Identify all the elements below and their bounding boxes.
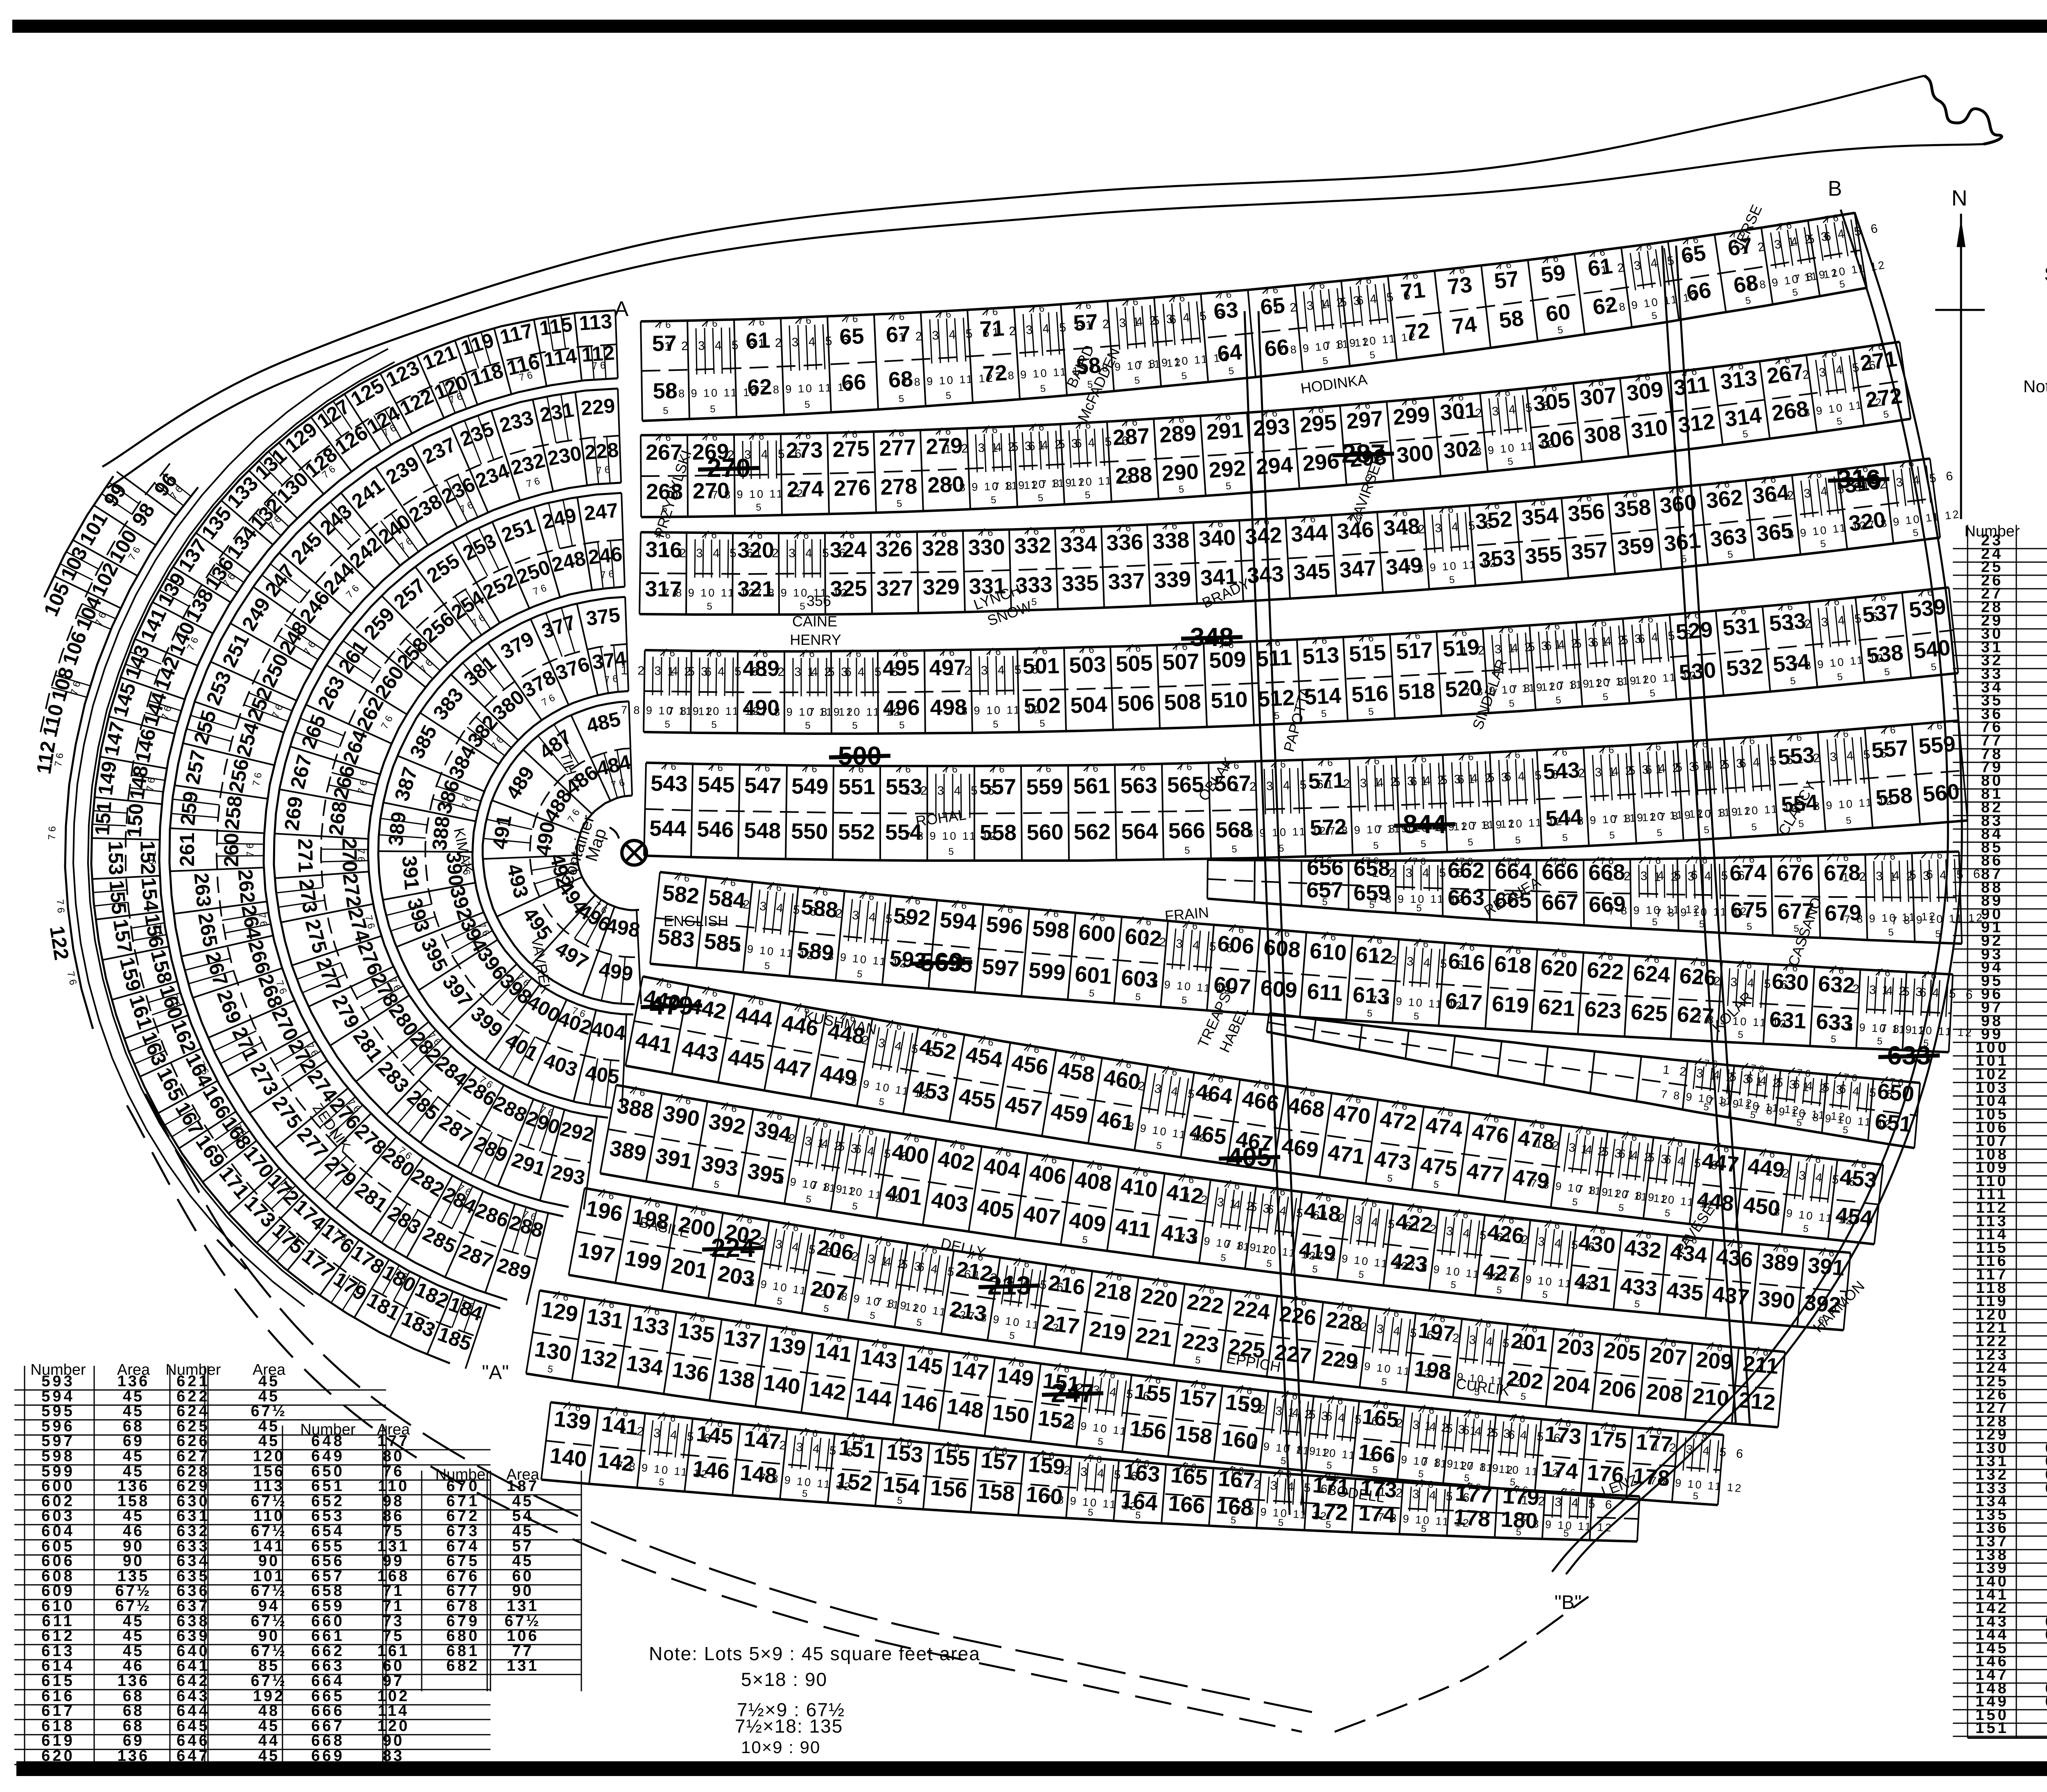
- svg-text:7 6: 7 6: [1043, 1153, 1058, 1166]
- svg-text:564: 564: [1121, 819, 1158, 844]
- svg-text:7 6: 7 6: [646, 1197, 662, 1210]
- svg-text:7 6: 7 6: [831, 1229, 846, 1242]
- svg-text:272: 272: [1864, 383, 1904, 413]
- svg-text:7 6: 7 6: [905, 1132, 920, 1145]
- svg-text:7 6: 7 6: [1414, 938, 1429, 950]
- svg-text:136: 136: [117, 1747, 149, 1765]
- svg-text:615: 615: [41, 1672, 75, 1690]
- svg-text:503: 503: [1069, 652, 1106, 678]
- svg-text:153: 153: [104, 841, 127, 875]
- svg-text:5: 5: [800, 601, 805, 612]
- svg-text:609: 609: [1259, 975, 1298, 1003]
- svg-text:5: 5: [1563, 1528, 1569, 1539]
- svg-text:510: 510: [1210, 687, 1248, 713]
- svg-text:5: 5: [658, 1476, 665, 1488]
- svg-text:7 6: 7 6: [953, 899, 967, 912]
- svg-text:7 6: 7 6: [1788, 853, 1802, 865]
- svg-text:7 6: 7 6: [1669, 1137, 1683, 1149]
- svg-text:653: 653: [311, 1507, 344, 1525]
- svg-text:496: 496: [883, 695, 920, 721]
- svg-text:106: 106: [507, 1627, 539, 1645]
- svg-text:146: 146: [899, 1388, 940, 1417]
- svg-text:N: N: [1952, 186, 1968, 210]
- svg-text:675: 675: [446, 1552, 479, 1570]
- svg-text:561: 561: [1073, 773, 1110, 799]
- svg-text:5: 5: [1602, 691, 1609, 703]
- svg-text:7 6: 7 6: [1137, 916, 1152, 928]
- svg-text:339: 339: [1153, 567, 1191, 593]
- svg-text:5: 5: [856, 968, 863, 980]
- svg-text:7 6: 7 6: [600, 1298, 615, 1311]
- svg-text:7 6: 7 6: [1738, 959, 1752, 971]
- svg-text:7 6: 7 6: [554, 1290, 569, 1304]
- svg-text:71: 71: [1399, 278, 1426, 305]
- svg-text:314: 314: [1723, 403, 1763, 432]
- svg-text:142: 142: [808, 1376, 848, 1406]
- svg-text:158: 158: [1174, 1421, 1214, 1450]
- svg-text:7 6: 7 6: [1637, 1229, 1652, 1241]
- svg-text:7 6: 7 6: [46, 826, 58, 840]
- svg-text:559: 559: [1918, 731, 1957, 759]
- svg-text:A: A: [615, 297, 629, 321]
- svg-text:140: 140: [549, 1443, 588, 1472]
- svg-text:150: 150: [991, 1400, 1031, 1429]
- svg-text:296: 296: [1301, 448, 1340, 476]
- svg-text:300: 300: [1396, 440, 1435, 468]
- svg-text:667: 667: [1541, 890, 1579, 915]
- svg-text:158: 158: [977, 1478, 1016, 1506]
- svg-text:90: 90: [123, 1552, 144, 1570]
- svg-text:5: 5: [805, 720, 810, 731]
- svg-text:310: 310: [1629, 415, 1669, 444]
- svg-text:7 6: 7 6: [1704, 1058, 1718, 1070]
- svg-text:559: 559: [1026, 774, 1063, 800]
- svg-text:353: 353: [1478, 545, 1516, 573]
- svg-text:7 6: 7 6: [1715, 479, 1730, 491]
- svg-text:7 6: 7 6: [1507, 945, 1521, 956]
- svg-text:620: 620: [41, 1747, 75, 1765]
- svg-text:538: 538: [1865, 640, 1905, 669]
- svg-text:5: 5: [1368, 706, 1374, 718]
- svg-text:246: 246: [587, 542, 624, 569]
- svg-text:5: 5: [1087, 1507, 1094, 1518]
- svg-text:151: 151: [1975, 1720, 2009, 1737]
- svg-text:7 6: 7 6: [355, 848, 367, 862]
- svg-text:7 6: 7 6: [1523, 1322, 1538, 1335]
- svg-text:7 6: 7 6: [1108, 1270, 1123, 1283]
- svg-text:7 6: 7 6: [1761, 1148, 1776, 1160]
- svg-text:5×18 : 90: 5×18 : 90: [741, 1669, 827, 1690]
- svg-text:7 6: 7 6: [814, 1117, 829, 1130]
- svg-text:5: 5: [1520, 1391, 1527, 1402]
- svg-text:5: 5: [852, 720, 857, 731]
- svg-text:507: 507: [1162, 649, 1200, 675]
- svg-text:7 6: 7 6: [873, 1338, 888, 1351]
- svg-text:337: 337: [1107, 568, 1145, 594]
- svg-text:5: 5: [1278, 1517, 1284, 1529]
- svg-text:7 6: 7 6: [1600, 856, 1614, 867]
- svg-text:7 6: 7 6: [1754, 1346, 1769, 1358]
- svg-text:5: 5: [1837, 671, 1843, 682]
- svg-text:7 6: 7 6: [1776, 354, 1791, 367]
- svg-text:210: 210: [1691, 1383, 1730, 1411]
- svg-text:7 6: 7 6: [1393, 1100, 1408, 1112]
- svg-text:69: 69: [123, 1732, 144, 1749]
- svg-text:5: 5: [1321, 708, 1327, 720]
- svg-text:469: 469: [1280, 1133, 1320, 1163]
- svg-text:45: 45: [258, 1373, 280, 1390]
- svg-text:7 6: 7 6: [1485, 1112, 1500, 1125]
- svg-text:531: 531: [1722, 613, 1760, 641]
- svg-text:5: 5: [1877, 1036, 1883, 1047]
- svg-text:611: 611: [1306, 979, 1344, 1006]
- svg-text:7 6: 7 6: [750, 994, 765, 1008]
- svg-text:136: 136: [117, 1373, 149, 1390]
- svg-text:155: 155: [105, 879, 131, 915]
- svg-text:7 6: 7 6: [1889, 1076, 1904, 1089]
- svg-text:5: 5: [1449, 574, 1455, 586]
- svg-text:46: 46: [123, 1657, 144, 1674]
- svg-text:5: 5: [1031, 597, 1037, 608]
- svg-text:67½: 67½: [115, 1598, 152, 1615]
- svg-text:7 6: 7 6: [1218, 289, 1232, 301]
- svg-text:5: 5: [764, 960, 770, 972]
- svg-text:7 6: 7 6: [1431, 1312, 1446, 1325]
- svg-text:152: 152: [834, 1468, 874, 1496]
- svg-text:5: 5: [1555, 695, 1561, 706]
- svg-text:5: 5: [898, 393, 904, 405]
- svg-text:45: 45: [123, 1403, 144, 1420]
- svg-text:7 6: 7 6: [1101, 1368, 1116, 1381]
- svg-text:5: 5: [1413, 1011, 1419, 1022]
- svg-text:5: 5: [1727, 549, 1733, 560]
- svg-text:156: 156: [1128, 1416, 1168, 1445]
- svg-text:146: 146: [691, 1456, 731, 1485]
- svg-text:5: 5: [1649, 687, 1656, 699]
- svg-text:5: 5: [1230, 1515, 1236, 1526]
- svg-text:675: 675: [1730, 897, 1767, 923]
- svg-text:5: 5: [945, 390, 951, 402]
- svg-text:67½: 67½: [2045, 1626, 2047, 1643]
- svg-text:616: 616: [1447, 949, 1486, 976]
- svg-text:7 6: 7 6: [999, 904, 1014, 916]
- svg-text:174: 174: [1540, 1456, 1579, 1484]
- svg-text:65: 65: [839, 324, 864, 349]
- svg-text:5: 5: [1704, 825, 1710, 836]
- svg-text:7 6: 7 6: [1506, 856, 1520, 867]
- svg-text:7 6: 7 6: [828, 1332, 843, 1345]
- svg-text:7 6: 7 6: [1134, 1166, 1149, 1179]
- svg-text:326: 326: [875, 536, 913, 562]
- svg-text:409: 409: [1068, 1207, 1108, 1237]
- svg-text:5: 5: [1184, 845, 1190, 856]
- svg-text:7 6: 7 6: [1180, 1173, 1195, 1186]
- svg-text:45: 45: [512, 1552, 533, 1570]
- svg-text:288: 288: [1114, 462, 1152, 489]
- svg-text:151: 151: [90, 800, 116, 836]
- svg-text:260: 260: [220, 833, 243, 867]
- svg-text:606: 606: [41, 1552, 75, 1570]
- svg-text:648: 648: [311, 1433, 344, 1450]
- svg-text:7 6: 7 6: [1741, 854, 1755, 865]
- svg-text:156: 156: [929, 1475, 968, 1503]
- svg-text:661: 661: [311, 1627, 344, 1645]
- svg-text:477: 477: [1465, 1158, 1505, 1188]
- svg-text:274: 274: [786, 477, 824, 502]
- svg-text:136: 136: [117, 1672, 149, 1690]
- svg-text:547: 547: [744, 773, 782, 798]
- svg-text:5: 5: [1609, 830, 1615, 841]
- svg-text:5: 5: [897, 498, 902, 509]
- svg-text:7 6: 7 6: [1322, 931, 1336, 943]
- svg-text:5: 5: [899, 720, 905, 731]
- svg-text:7 6: 7 6: [1796, 1067, 1811, 1080]
- svg-text:278: 278: [880, 474, 917, 499]
- svg-text:597: 597: [41, 1433, 75, 1450]
- svg-text:7 6: 7 6: [1209, 1072, 1225, 1085]
- svg-text:7 6: 7 6: [1363, 1197, 1378, 1210]
- svg-text:7 6: 7 6: [1459, 856, 1473, 867]
- svg-text:623: 623: [1584, 997, 1622, 1024]
- svg-text:563: 563: [1120, 773, 1157, 798]
- svg-text:7 6: 7 6: [646, 1305, 661, 1318]
- svg-text:5: 5: [1369, 349, 1376, 361]
- svg-text:7 6: 7 6: [1246, 1289, 1261, 1302]
- svg-text:58: 58: [1498, 306, 1525, 333]
- svg-text:388: 388: [428, 815, 454, 852]
- svg-text:614: 614: [41, 1657, 75, 1674]
- svg-text:ENGLISH: ENGLISH: [664, 913, 728, 929]
- svg-text:113: 113: [578, 310, 613, 334]
- svg-text:391: 391: [398, 855, 423, 891]
- svg-text:610: 610: [41, 1598, 75, 1615]
- svg-text:7 6: 7 6: [860, 1125, 875, 1138]
- svg-text:66: 66: [841, 370, 866, 395]
- svg-text:404: 404: [590, 1017, 627, 1045]
- svg-text:7 6: 7 6: [1301, 1086, 1316, 1099]
- svg-text:7 6: 7 6: [245, 843, 256, 856]
- svg-text:5: 5: [707, 601, 712, 612]
- svg-text:552: 552: [838, 820, 875, 844]
- svg-text:B: B: [1828, 177, 1842, 201]
- svg-text:7 6: 7 6: [54, 899, 67, 914]
- svg-text:5: 5: [1751, 822, 1757, 833]
- svg-text:7 6: 7 6: [1647, 855, 1661, 867]
- svg-text:625: 625: [1630, 999, 1668, 1026]
- svg-text:7 6: 7 6: [1531, 1119, 1546, 1131]
- svg-text:138: 138: [716, 1364, 757, 1393]
- svg-text:511: 511: [1256, 645, 1292, 671]
- svg-text:5: 5: [1322, 897, 1327, 908]
- svg-text:324: 324: [829, 537, 867, 563]
- svg-text:67½: 67½: [115, 1582, 152, 1600]
- svg-text:549: 549: [791, 774, 829, 799]
- svg-text:7 6: 7 6: [1238, 1384, 1253, 1397]
- svg-text:7 6: 7 6: [1071, 1051, 1087, 1064]
- svg-text:54: 54: [512, 1507, 533, 1525]
- svg-text:600: 600: [1078, 920, 1116, 947]
- svg-text:7 6: 7 6: [145, 777, 157, 792]
- svg-text:663: 663: [1448, 886, 1484, 910]
- svg-text:7 6: 7 6: [1365, 856, 1378, 867]
- svg-text:5: 5: [1326, 1460, 1333, 1471]
- svg-text:537: 537: [1861, 599, 1900, 628]
- svg-text:7 6: 7 6: [784, 1221, 800, 1234]
- svg-text:7 6: 7 6: [1774, 1243, 1789, 1255]
- svg-text:7 6: 7 6: [1591, 1224, 1606, 1236]
- svg-text:5: 5: [897, 1495, 903, 1506]
- svg-text:CAINE: CAINE: [792, 613, 837, 630]
- svg-text:505: 505: [1115, 651, 1153, 676]
- svg-text:595: 595: [41, 1403, 75, 1420]
- svg-text:389: 389: [384, 811, 410, 847]
- svg-text:512: 512: [1257, 685, 1295, 712]
- svg-text:5: 5: [1373, 840, 1379, 851]
- svg-text:115: 115: [538, 313, 574, 340]
- svg-text:131: 131: [507, 1598, 539, 1615]
- svg-text:5: 5: [1692, 1490, 1699, 1502]
- svg-text:290: 290: [1161, 459, 1200, 486]
- svg-text:247: 247: [583, 499, 619, 525]
- svg-text:7 6: 7 6: [1163, 1065, 1178, 1078]
- svg-text:259: 259: [176, 790, 202, 827]
- svg-text:540: 540: [1912, 635, 1952, 664]
- svg-text:148: 148: [945, 1394, 985, 1423]
- svg-text:7 6: 7 6: [1729, 1238, 1744, 1250]
- svg-text:272: 272: [338, 872, 366, 908]
- svg-text:7 6: 7 6: [1255, 1079, 1270, 1092]
- svg-text:5: 5: [1515, 835, 1521, 846]
- svg-text:Scale 1"= 20': Scale 1"= 20': [2044, 264, 2047, 285]
- svg-text:530: 530: [1678, 658, 1717, 685]
- svg-text:612: 612: [41, 1627, 75, 1645]
- svg-text:501: 501: [1022, 653, 1060, 679]
- svg-text:7 6: 7 6: [1412, 856, 1426, 867]
- svg-text:7 6: 7 6: [1117, 1058, 1132, 1071]
- svg-text:7 6: 7 6: [1808, 469, 1822, 481]
- svg-text:604: 604: [41, 1523, 75, 1540]
- svg-text:5: 5: [1509, 698, 1515, 710]
- svg-text:598: 598: [1031, 916, 1070, 944]
- svg-text:7 6: 7 6: [1339, 1301, 1353, 1314]
- svg-text:45: 45: [123, 1448, 144, 1465]
- svg-text:601: 601: [1074, 961, 1113, 989]
- svg-text:433: 433: [1619, 1273, 1658, 1302]
- svg-text:7 6: 7 6: [1010, 1357, 1025, 1369]
- svg-text:617: 617: [41, 1702, 75, 1720]
- svg-text:7 6: 7 6: [890, 311, 905, 323]
- svg-text:7 6: 7 6: [692, 1205, 707, 1218]
- svg-text:560: 560: [1922, 779, 1961, 807]
- svg-text:166: 166: [1167, 1491, 1206, 1519]
- svg-text:5: 5: [802, 1488, 808, 1499]
- svg-text:7 6: 7 6: [657, 432, 671, 443]
- svg-text:7 6: 7 6: [1466, 1408, 1480, 1421]
- svg-text:7 6: 7 6: [722, 876, 737, 888]
- svg-text:672: 672: [446, 1507, 479, 1525]
- svg-text:67½: 67½: [2045, 1480, 2047, 1497]
- svg-text:7 6: 7 6: [906, 895, 921, 907]
- svg-text:7 6: 7 6: [53, 752, 66, 767]
- svg-text:328: 328: [922, 536, 959, 561]
- svg-text:7 6: 7 6: [1015, 1257, 1030, 1270]
- svg-text:7 6: 7 6: [1882, 851, 1896, 862]
- svg-text:7 6: 7 6: [1088, 1160, 1103, 1173]
- svg-text:677: 677: [446, 1582, 479, 1600]
- svg-text:7 6: 7 6: [1461, 941, 1475, 953]
- svg-text:7 6: 7 6: [751, 316, 765, 328]
- svg-text:7 6: 7 6: [691, 1312, 706, 1325]
- svg-text:504: 504: [1070, 692, 1107, 718]
- svg-text:306: 306: [1536, 426, 1575, 454]
- svg-text:68: 68: [123, 1702, 144, 1720]
- svg-text:219: 219: [1088, 1316, 1128, 1346]
- svg-text:7 6: 7 6: [1623, 1131, 1638, 1143]
- svg-text:140: 140: [762, 1370, 802, 1399]
- svg-text:5: 5: [711, 719, 716, 730]
- svg-text:551: 551: [838, 775, 875, 799]
- svg-text:7 6: 7 6: [1477, 1317, 1492, 1330]
- svg-text:7 6: 7 6: [768, 881, 782, 893]
- svg-text:7 6: 7 6: [1708, 1342, 1723, 1354]
- svg-text:7 6: 7 6: [979, 1035, 995, 1048]
- svg-text:73: 73: [1446, 272, 1473, 300]
- svg-text:666: 666: [311, 1702, 344, 1720]
- svg-text:405: 405: [584, 1061, 621, 1089]
- svg-text:5: 5: [1656, 827, 1663, 839]
- svg-text:5: 5: [1416, 903, 1421, 914]
- svg-text:610: 610: [1309, 938, 1347, 965]
- svg-text:7½×18: 135: 7½×18: 135: [735, 1715, 843, 1737]
- svg-text:46: 46: [123, 1523, 144, 1540]
- svg-text:204: 204: [1552, 1371, 1591, 1399]
- svg-text:411: 411: [1114, 1213, 1153, 1243]
- svg-text:516: 516: [1351, 681, 1389, 707]
- svg-text:72: 72: [1404, 318, 1431, 345]
- svg-text:5: 5: [993, 719, 999, 730]
- svg-text:7 6: 7 6: [596, 464, 611, 477]
- svg-text:7 6: 7 6: [984, 424, 998, 436]
- svg-text:7 6: 7 6: [151, 922, 165, 938]
- svg-text:557: 557: [979, 775, 1016, 799]
- svg-text:60: 60: [1544, 299, 1572, 327]
- svg-text:7 6: 7 6: [1055, 1363, 1070, 1375]
- svg-text:7 6: 7 6: [1662, 1337, 1677, 1349]
- svg-text:558: 558: [980, 820, 1017, 845]
- svg-text:90: 90: [512, 1582, 533, 1600]
- svg-text:5: 5: [1846, 815, 1852, 827]
- svg-text:7 6: 7 6: [1616, 1332, 1631, 1345]
- svg-text:149: 149: [94, 759, 121, 796]
- svg-text:7 6: 7 6: [1570, 1327, 1584, 1340]
- svg-text:5: 5: [948, 846, 953, 857]
- svg-text:5: 5: [1322, 355, 1329, 366]
- svg-text:668: 668: [311, 1732, 344, 1749]
- svg-text:475: 475: [1419, 1152, 1459, 1182]
- svg-text:532: 532: [1725, 653, 1764, 681]
- svg-text:7 6: 7 6: [1192, 1379, 1207, 1392]
- svg-text:682: 682: [446, 1657, 479, 1674]
- svg-text:7 6: 7 6: [1557, 1417, 1572, 1430]
- svg-text:5: 5: [1367, 1008, 1373, 1019]
- svg-text:7 6: 7 6: [738, 1213, 754, 1226]
- svg-text:7 6: 7 6: [1732, 606, 1747, 618]
- svg-text:5: 5: [1135, 991, 1141, 1003]
- svg-text:131: 131: [507, 1657, 539, 1674]
- svg-text:347: 347: [1339, 556, 1377, 583]
- svg-text:7 6: 7 6: [768, 1109, 784, 1122]
- svg-text:5: 5: [1181, 370, 1188, 382]
